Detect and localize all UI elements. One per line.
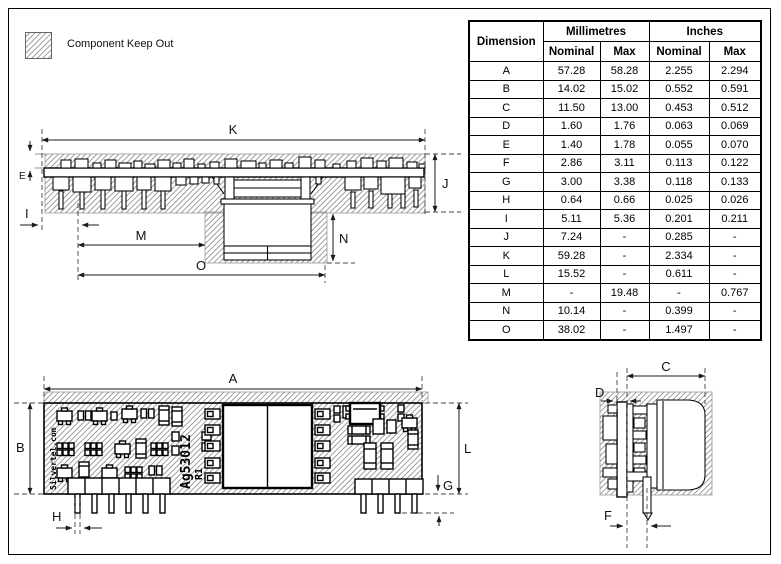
dim-g: G [438, 475, 453, 526]
table-cell: 0.211 [709, 210, 761, 229]
dim-m: M [78, 228, 205, 245]
table-cell: 1.60 [543, 117, 600, 136]
table-cell: 19.48 [600, 284, 649, 303]
table-cell: 0.113 [649, 154, 709, 173]
table-cell: N [469, 302, 543, 321]
table-cell: 5.36 [600, 210, 649, 229]
table-cell: O [469, 321, 543, 340]
transformer-top [205, 405, 330, 488]
table-row: A 57.28 58.28 2.255 2.294 [469, 62, 761, 81]
dim-label-k: K [229, 122, 238, 137]
dim-label-n: N [339, 231, 348, 246]
dim-a: A [44, 371, 422, 389]
silkscreen-revision: R1 [194, 468, 205, 480]
table-cell: - [543, 284, 600, 303]
table-cell: 0.66 [600, 191, 649, 210]
table-cell: 0.453 [649, 99, 709, 118]
table-cell: - [709, 265, 761, 284]
dimension-table: Dimension Millimetres Inches Nominal Max… [468, 20, 762, 341]
table-cell: F [469, 154, 543, 173]
table-cell: 10.14 [543, 302, 600, 321]
keepout-strip-top [44, 392, 428, 403]
dim-c: C [627, 360, 705, 376]
table-cell: 2.86 [543, 154, 600, 173]
table-cell: 0.285 [649, 228, 709, 247]
dim-label-i: I [25, 206, 29, 221]
table-cell: - [600, 302, 649, 321]
table-cell: 3.11 [600, 154, 649, 173]
dim-label-f: F [604, 508, 612, 523]
table-cell: 3.38 [600, 173, 649, 192]
table-cell: 5.11 [543, 210, 600, 229]
table-cell: - [709, 228, 761, 247]
table-cell: 7.24 [543, 228, 600, 247]
dim-f: F [604, 508, 671, 526]
table-cell: 3.00 [543, 173, 600, 192]
dim-label-j: J [442, 176, 449, 191]
table-cell: - [600, 321, 649, 340]
table-row: L 15.52 - 0.611 - [469, 265, 761, 284]
table-cell: 57.28 [543, 62, 600, 81]
table-cell: 1.497 [649, 321, 709, 340]
top-view-drawing: Silvertel.com Ag53012 R1 [12, 362, 474, 562]
side-view-drawing: K E I M O N J [15, 115, 467, 315]
table-cell: 0.055 [649, 136, 709, 155]
table-cell: 0.025 [649, 191, 709, 210]
table-cell: B [469, 80, 543, 99]
col-header-dimension: Dimension [469, 21, 543, 62]
silkscreen-part-number: Ag53012 [179, 434, 194, 489]
pin-header-right [355, 479, 423, 513]
table-cell: H [469, 191, 543, 210]
table-cell: L [469, 265, 543, 284]
dim-j: J [435, 154, 449, 212]
table-row: N 10.14 - 0.399 - [469, 302, 761, 321]
table-cell: 13.00 [600, 99, 649, 118]
table-row: E 1.40 1.78 0.055 0.070 [469, 136, 761, 155]
col-group-inches: Inches [649, 21, 761, 42]
table-cell: M [469, 284, 543, 303]
transformer-side [212, 177, 323, 260]
table-cell: 11.50 [543, 99, 600, 118]
dim-label-m: M [136, 228, 147, 243]
pin-header-left [68, 478, 170, 513]
end-view-module [603, 400, 705, 520]
dim-label-e: E [19, 171, 26, 182]
table-cell: - [649, 284, 709, 303]
dim-n: N [333, 214, 348, 261]
table-cell: 2.334 [649, 247, 709, 266]
col-group-millimetres: Millimetres [543, 21, 649, 42]
table-cell: 0.611 [649, 265, 709, 284]
table-cell: G [469, 173, 543, 192]
table-row: O 38.02 - 1.497 - [469, 321, 761, 340]
table-cell: J [469, 228, 543, 247]
table-row: J 7.24 - 0.285 - [469, 228, 761, 247]
table-cell: 0.399 [649, 302, 709, 321]
table-cell: 0.118 [649, 173, 709, 192]
table-cell: A [469, 62, 543, 81]
table-cell: 0.552 [649, 80, 709, 99]
table-cell: 0.64 [543, 191, 600, 210]
table-cell: 0.122 [709, 154, 761, 173]
table-row: K 59.28 - 2.334 - [469, 247, 761, 266]
table-row: F 2.86 3.11 0.113 0.122 [469, 154, 761, 173]
col-header-in-max: Max [709, 42, 761, 62]
dim-label-g: G [443, 478, 453, 493]
table-cell: - [709, 247, 761, 266]
table-cell: 0.069 [709, 117, 761, 136]
table-cell: 0.063 [649, 117, 709, 136]
table-cell: - [600, 228, 649, 247]
table-row: D 1.60 1.76 0.063 0.069 [469, 117, 761, 136]
dim-k: K [42, 122, 425, 140]
table-row: C 11.50 13.00 0.453 0.512 [469, 99, 761, 118]
table-cell: 1.40 [543, 136, 600, 155]
table-cell: 2.255 [649, 62, 709, 81]
table-cell: C [469, 99, 543, 118]
table-cell: - [709, 321, 761, 340]
table-cell: E [469, 136, 543, 155]
table-cell: 0.026 [709, 191, 761, 210]
table-cell: 14.02 [543, 80, 600, 99]
table-row: M - 19.48 - 0.767 [469, 284, 761, 303]
col-header-in-nominal: Nominal [649, 42, 709, 62]
table-cell: 15.02 [600, 80, 649, 99]
table-cell: 15.52 [543, 265, 600, 284]
col-header-mm-nominal: Nominal [543, 42, 600, 62]
silkscreen-brand: Silvertel.com [48, 427, 58, 490]
dim-label-c: C [661, 360, 670, 374]
table-cell: 0.767 [709, 284, 761, 303]
col-header-mm-max: Max [600, 42, 649, 62]
dim-label-l: L [464, 441, 471, 456]
table-cell: I [469, 210, 543, 229]
table-row: H 0.64 0.66 0.025 0.026 [469, 191, 761, 210]
table-row: G 3.00 3.38 0.118 0.133 [469, 173, 761, 192]
dim-label-h: H [52, 509, 61, 524]
pcb-side [44, 168, 424, 177]
table-cell: 0.591 [709, 80, 761, 99]
dim-l: L [459, 403, 471, 494]
table-cell: 59.28 [543, 247, 600, 266]
end-view-drawing: C D F [575, 360, 750, 552]
table-cell: - [709, 302, 761, 321]
dim-label-b: B [16, 440, 25, 455]
table-cell: 38.02 [543, 321, 600, 340]
keepout-legend-label: Component Keep Out [67, 38, 173, 50]
dim-e: E [19, 141, 30, 182]
dim-label-a: A [229, 371, 238, 386]
table-cell: - [600, 265, 649, 284]
table-cell: 1.78 [600, 136, 649, 155]
table-cell: 58.28 [600, 62, 649, 81]
table-cell: 2.294 [709, 62, 761, 81]
table-cell: 0.070 [709, 136, 761, 155]
dim-label-o: O [196, 258, 206, 273]
table-cell: 0.133 [709, 173, 761, 192]
table-cell: K [469, 247, 543, 266]
table-cell: 0.201 [649, 210, 709, 229]
table-row: B 14.02 15.02 0.552 0.591 [469, 80, 761, 99]
table-cell: - [600, 247, 649, 266]
dimension-table-body: A 57.28 58.28 2.255 2.294 B 14.02 15.02 … [469, 62, 761, 340]
table-cell: 1.76 [600, 117, 649, 136]
table-cell: 0.512 [709, 99, 761, 118]
keepout-legend-swatch [25, 32, 53, 60]
table-cell: D [469, 117, 543, 136]
dim-b: B [16, 403, 30, 494]
dim-label-d: D [595, 385, 604, 400]
table-row: I 5.11 5.36 0.201 0.211 [469, 210, 761, 229]
